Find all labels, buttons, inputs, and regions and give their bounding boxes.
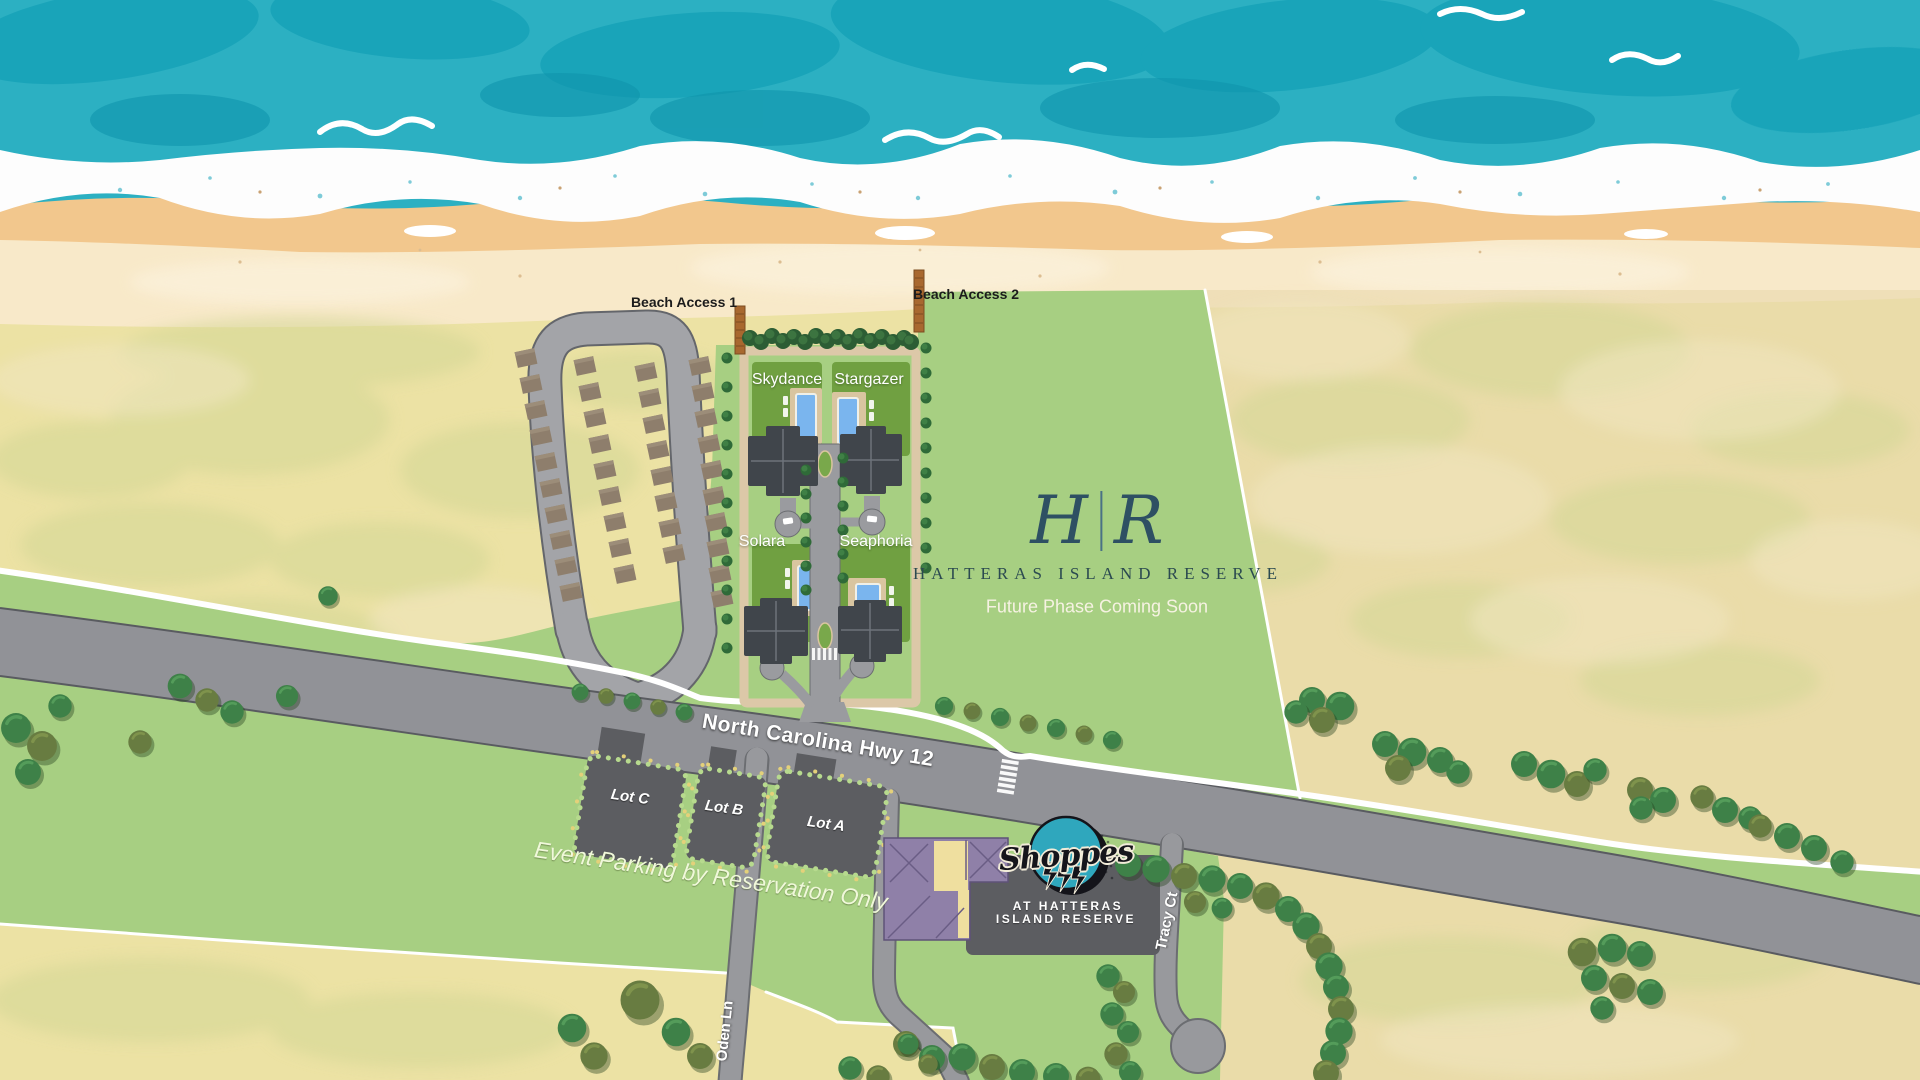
- label-villa-stargazer: Stargazer: [834, 371, 903, 389]
- hatteras-logo: H R: [1030, 488, 1163, 554]
- label-villa-seaphoria: Seaphoria: [840, 533, 913, 551]
- label-beach-access-1: Beach Access 1: [631, 294, 737, 310]
- shoppes-subline-1: AT HATTERAS: [1013, 899, 1123, 913]
- house-stargazer: [840, 426, 902, 494]
- logo-initial-h: H: [1030, 488, 1088, 554]
- map-illustration: [0, 0, 1920, 1080]
- label-beach-access-2: Beach Access 2: [913, 286, 1019, 302]
- car: [867, 515, 878, 522]
- beach-boardwalk-1: [735, 306, 745, 354]
- label-future-phase: Future Phase Coming Soon: [986, 597, 1208, 618]
- tracy-culdesac: [1171, 1019, 1225, 1073]
- house-skydance: [748, 426, 818, 496]
- site-map: Beach Access 1 Beach Access 2 Skydance S…: [0, 0, 1920, 1080]
- entry-island-south: [818, 623, 832, 649]
- logo-divider: [1100, 491, 1102, 551]
- entry-island-north: [818, 451, 832, 477]
- label-villa-solara: Solara: [739, 533, 785, 551]
- shoppes-subline-2: ISLAND RESERVE: [996, 912, 1136, 926]
- logo-initial-r: R: [1114, 488, 1164, 554]
- label-villa-skydance: Skydance: [752, 371, 822, 389]
- house-seaphoria: [838, 600, 902, 662]
- label-reserve-name: HATTERAS ISLAND RESERVE: [913, 564, 1283, 584]
- house-solara: [744, 598, 808, 664]
